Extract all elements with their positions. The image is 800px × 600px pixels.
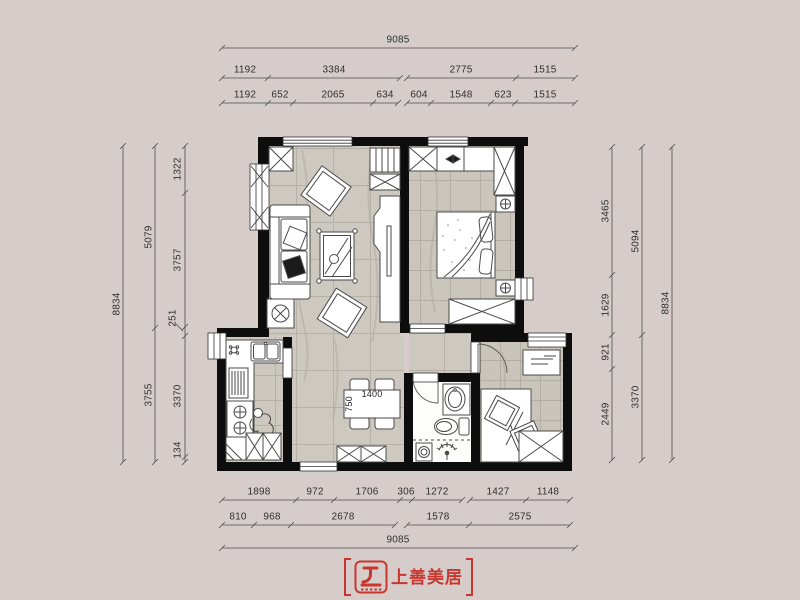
dim-label: 1272 (425, 487, 448, 498)
dim-label: 1578 (426, 512, 449, 523)
dim-label: 2575 (508, 512, 531, 523)
dim-label: 2449 (601, 402, 612, 425)
dim-label: 1192 (234, 65, 256, 76)
dim-label: 2065 (321, 90, 344, 101)
dim-label: 2775 (449, 65, 472, 76)
dim-label: 134 (173, 441, 184, 458)
logo-bracket-left (344, 558, 351, 596)
dim-label: 2678 (331, 512, 354, 523)
dim-label: 3757 (173, 248, 184, 271)
dim-label: 8834 (112, 292, 123, 315)
dim-label: 251 (168, 309, 179, 326)
dim-label: 1515 (533, 65, 556, 76)
dim-label: 1629 (601, 293, 612, 316)
dim-label: 1322 (173, 157, 184, 180)
nightstand-bottom (496, 280, 515, 296)
floor-hall (409, 328, 471, 373)
dim-label: 8834 (661, 291, 672, 314)
bay-window-living-left (250, 164, 269, 230)
dim-label: 810 (229, 512, 246, 523)
bed (437, 212, 495, 278)
entry-door-opening (300, 462, 337, 471)
dim-label: 921 (601, 343, 612, 360)
dim-label: 1192 (234, 90, 256, 101)
dim-label: 1898 (247, 487, 270, 498)
washing-machine (416, 443, 432, 461)
cooktop (227, 401, 253, 437)
dim-label: 604 (410, 90, 427, 101)
dim-label: 3370 (173, 384, 184, 407)
small-bedroom-door-opening (471, 342, 480, 373)
dresser (449, 299, 515, 324)
shoe-cabinet (337, 446, 386, 462)
toilet (435, 418, 470, 435)
dim-label: 634 (376, 90, 393, 101)
washbasin (443, 384, 470, 415)
dim-label: 1148 (537, 487, 559, 498)
window-living-top (283, 137, 352, 146)
bathroom-door-opening (413, 373, 438, 382)
side-table-lamp (267, 299, 294, 328)
nightstand-top (496, 196, 515, 212)
shangshan-meiju-logo-icon (354, 560, 388, 594)
corner-cabinet (269, 147, 293, 171)
window-bedroom-top (428, 137, 468, 146)
dim-label: 3755 (144, 383, 155, 406)
dim-label: 972 (306, 487, 323, 498)
dim-label: 3384 (322, 65, 345, 76)
dim-label: 3465 (601, 199, 612, 222)
dim-label: 1515 (533, 90, 556, 101)
dim-label: 1427 (486, 487, 509, 498)
small-wardrobe (519, 431, 563, 462)
floor-plan-page: 9085 1192 3384 2775 1515 1192 652 2065 6… (0, 0, 800, 600)
dim-label: 652 (271, 90, 288, 101)
dim-label: 306 (397, 487, 414, 498)
kitchen-sink (251, 342, 280, 361)
dim-label: 1548 (449, 90, 472, 101)
sofa (270, 205, 310, 299)
dim-label: 623 (494, 90, 511, 101)
kitchen-rack (229, 368, 248, 398)
dim-label: 3370 (631, 385, 642, 408)
window-small-bedroom (528, 333, 566, 347)
kitchen-door-opening (283, 348, 292, 378)
logo-bracket-right (466, 558, 473, 596)
tv (387, 226, 391, 276)
bedroom-door-opening (410, 324, 445, 333)
dim-label: 5079 (144, 225, 155, 248)
fridge (370, 148, 400, 190)
window-bedroom-right (515, 278, 533, 300)
window-kitchen-left (208, 333, 226, 359)
table-width-label: 1400 (362, 389, 383, 399)
logo: 上善美居 (344, 555, 473, 599)
dim-label: 9085 (386, 35, 409, 46)
logo-text: 上善美居 (391, 569, 463, 586)
coffee-table (317, 229, 357, 283)
dim-label: 5094 (631, 229, 642, 252)
dim-label: 9085 (386, 535, 409, 546)
dim-label: 1706 (355, 487, 378, 498)
kitchen-plant (229, 346, 238, 354)
table-depth-label: 750 (344, 396, 354, 412)
dim-label: 968 (263, 512, 280, 523)
desk (523, 350, 560, 375)
